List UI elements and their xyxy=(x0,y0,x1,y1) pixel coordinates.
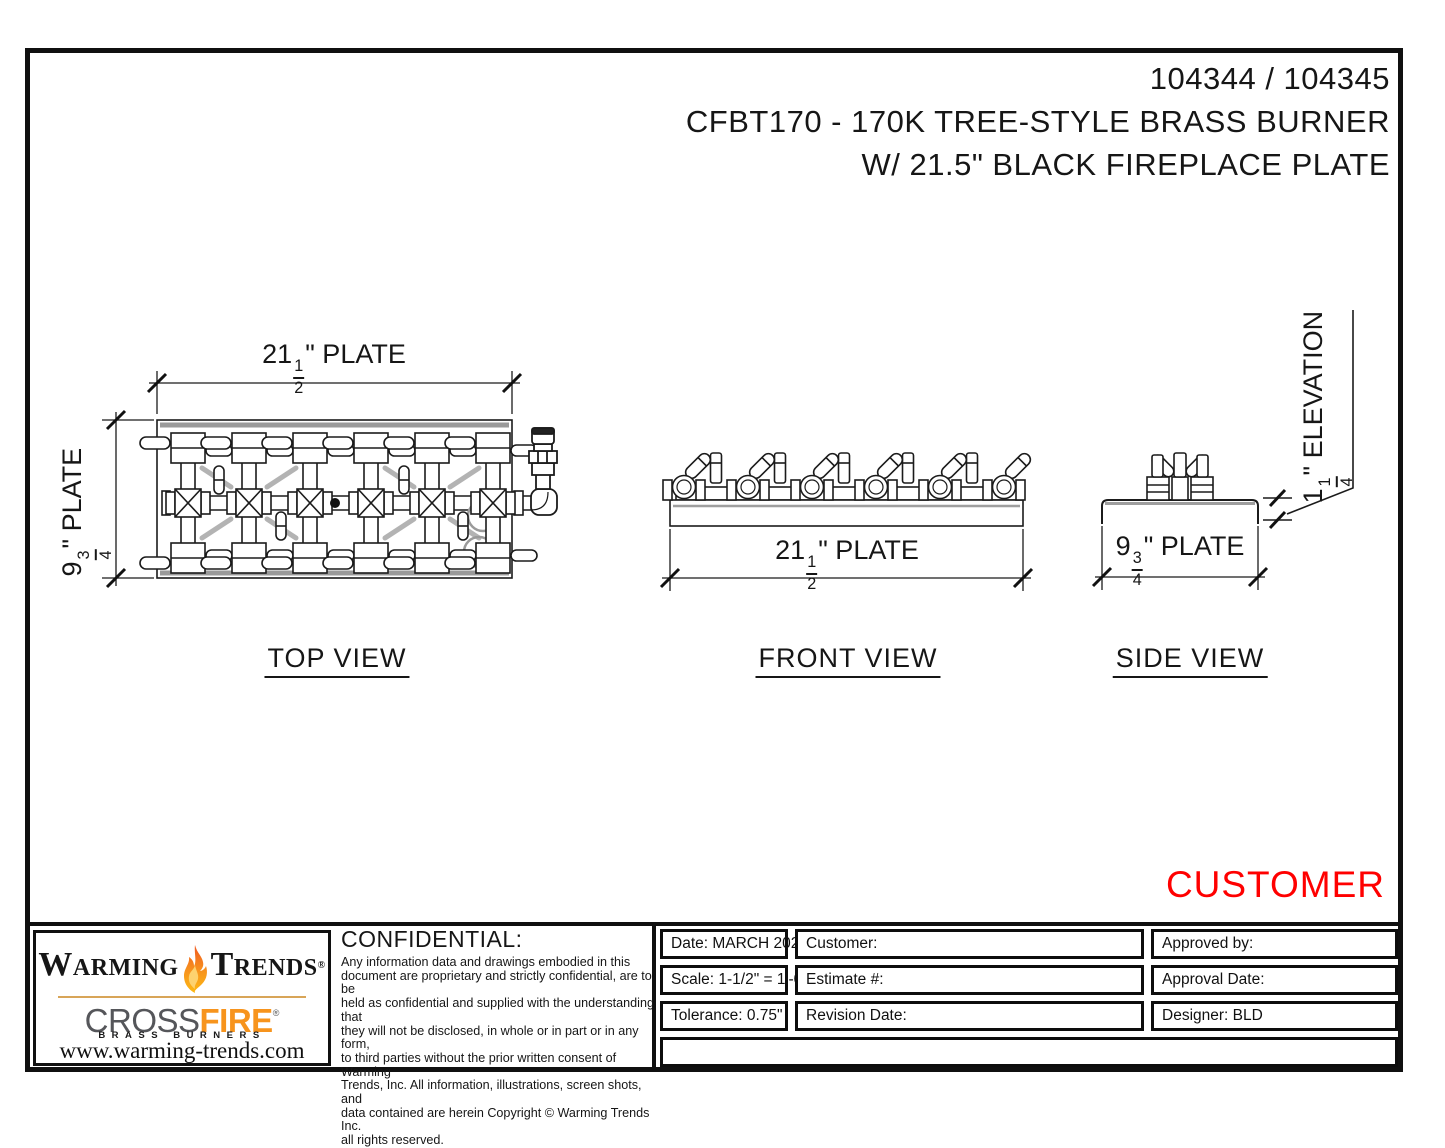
top-view-depth-dimension: 934" PLATE xyxy=(57,432,115,592)
brand-warming: Warming xyxy=(38,946,178,984)
side-view-label: SIDE VIEW xyxy=(1113,643,1268,678)
flame-icon xyxy=(182,945,208,993)
registered-mark: ® xyxy=(318,960,326,971)
elevation-dimension: 114" ELEVATION xyxy=(1298,276,1356,538)
field-customer[interactable]: Customer: xyxy=(795,929,1144,959)
field-designer: Designer: BLD xyxy=(1151,1001,1398,1031)
registered-mark: ® xyxy=(273,1008,280,1018)
website-url: www.warming-trends.com xyxy=(36,1038,328,1064)
engineering-drawing-page: { "header": { "part_numbers": "104344 / … xyxy=(0,0,1445,1117)
field-approval-date[interactable]: Approval Date: xyxy=(1151,965,1398,995)
front-view-label: FRONT VIEW xyxy=(755,643,940,678)
warming-trends-logo: Warming Trends ® xyxy=(36,941,328,989)
logo-box: Warming Trends ® CROSSFIRE® BRASS BURNER… xyxy=(33,930,331,1066)
field-estimate[interactable]: Estimate #: xyxy=(795,965,1144,995)
confidential-heading: CONFIDENTIAL: xyxy=(341,926,523,953)
top-view-label: TOP VIEW xyxy=(264,643,409,678)
notes-cell[interactable] xyxy=(660,1037,1398,1067)
side-view-width-dimension: 934" PLATE xyxy=(1116,531,1245,589)
confidential-text: Any information data and drawings embodi… xyxy=(341,956,659,1148)
top-view-width-dimension: 2112" PLATE xyxy=(262,339,406,397)
field-tolerance: Tolerance: 0.75" xyxy=(660,1001,788,1031)
field-revision-date[interactable]: Revision Date: xyxy=(795,1001,1144,1031)
field-scale: Scale: 1-1/2" = 1'-0" xyxy=(660,965,788,995)
field-approved-by[interactable]: Approved by: xyxy=(1151,929,1398,959)
top-view-drawing xyxy=(102,371,557,587)
field-date: Date: MARCH 2024 xyxy=(660,929,788,959)
brand-trends: Trends xyxy=(211,946,318,984)
front-view-width-dimension: 2112" PLATE xyxy=(775,535,919,593)
